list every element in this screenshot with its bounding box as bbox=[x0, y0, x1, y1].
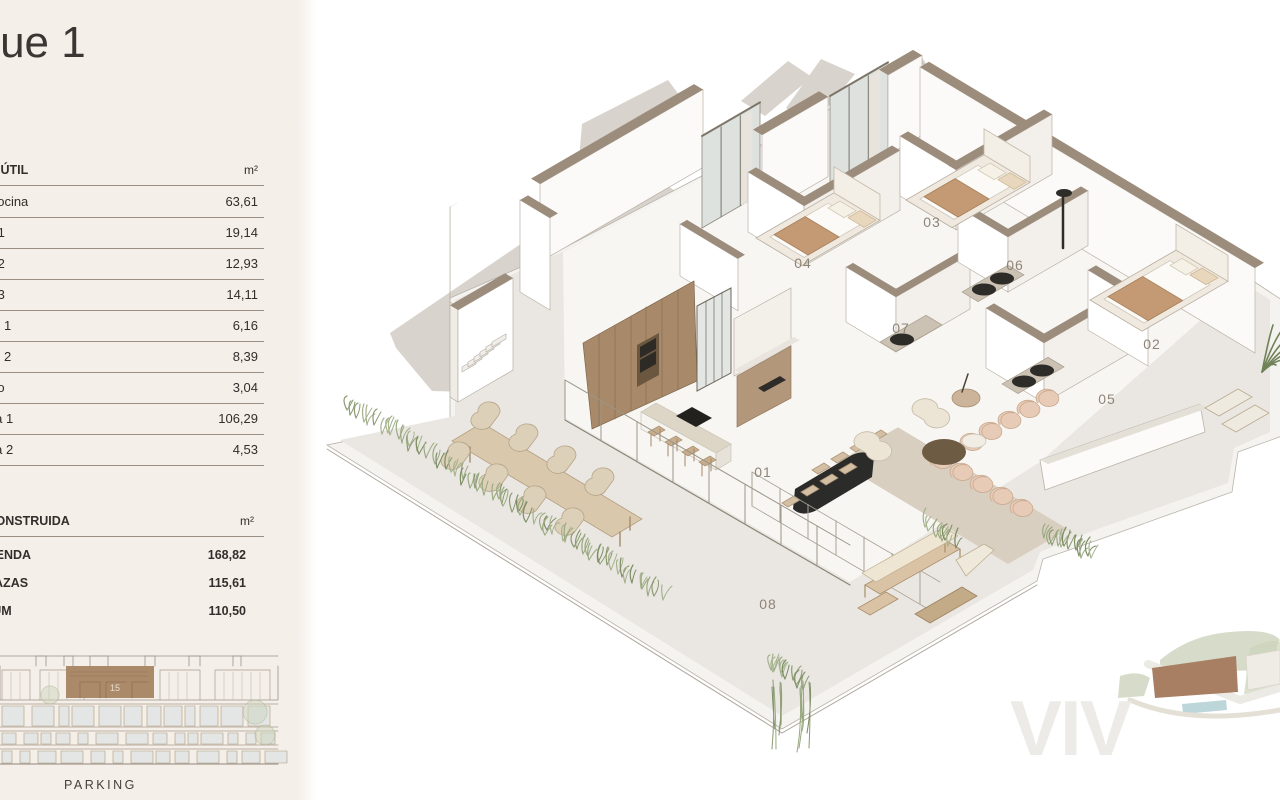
svg-text:04: 04 bbox=[794, 255, 812, 271]
svg-text:02: 02 bbox=[1143, 336, 1161, 352]
svg-text:07: 07 bbox=[892, 320, 910, 336]
svg-text:05: 05 bbox=[1098, 391, 1116, 407]
svg-text:08: 08 bbox=[759, 596, 777, 612]
svg-text:VIV: VIV bbox=[1010, 684, 1132, 772]
svg-text:01: 01 bbox=[754, 464, 772, 480]
svg-text:03: 03 bbox=[923, 214, 941, 230]
svg-text:06: 06 bbox=[1006, 257, 1024, 273]
